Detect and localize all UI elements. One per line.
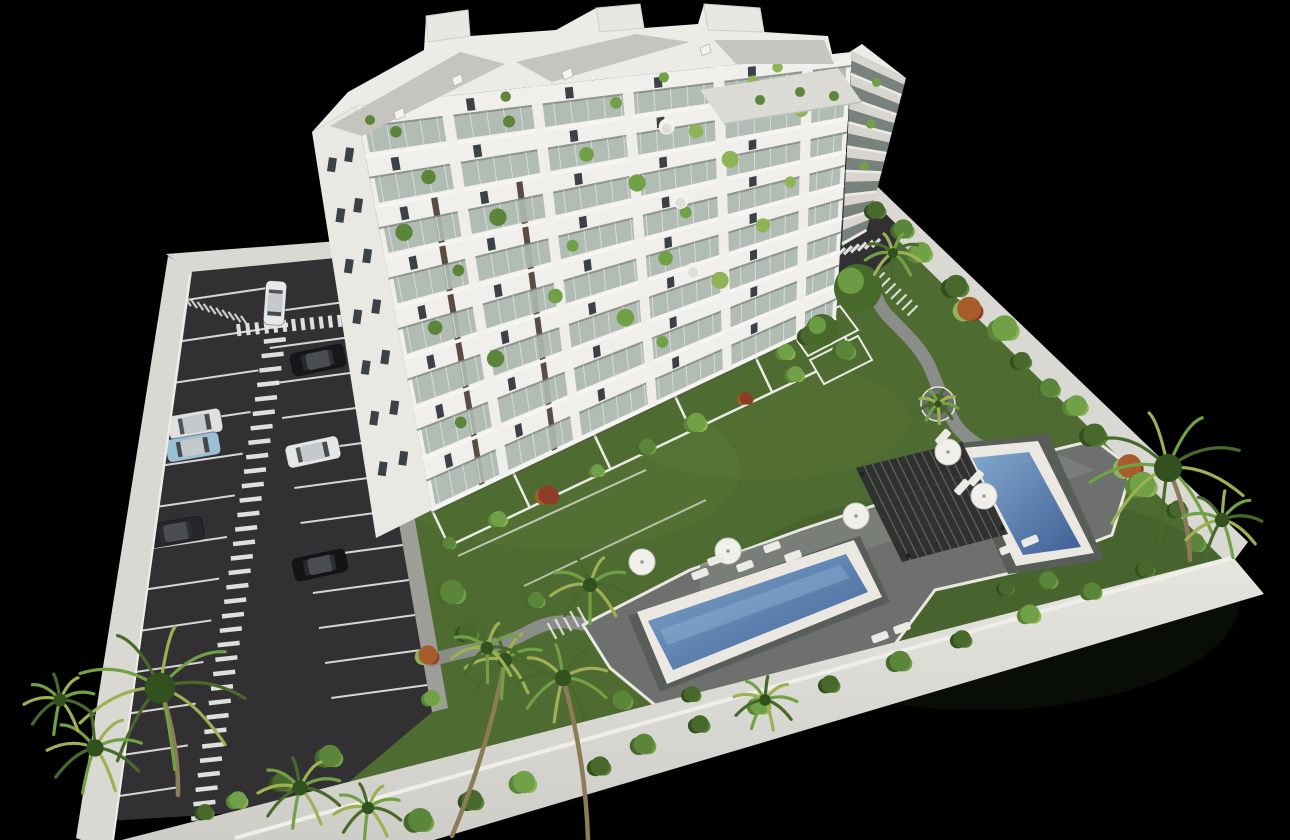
palm-crown [934,400,941,407]
walkway-dash [248,440,270,442]
roof-bulkhead [426,10,470,42]
window [588,302,596,316]
roof-plant [365,115,375,125]
crosswalk-dash [321,317,323,329]
balcony-plant [872,78,881,87]
east-slab [846,171,882,173]
balcony-plant [610,97,622,109]
balcony-plant [390,126,402,138]
bush [590,756,609,775]
walkway-dash [202,744,224,746]
bush [778,344,794,360]
crosswalk-dash [311,317,313,329]
site-render [0,0,1290,840]
pergola-leg [906,554,911,559]
window [749,176,757,187]
balcony-plant [756,218,770,232]
roof-bulkhead [704,4,764,32]
bush [1020,604,1039,623]
glass-mullion [816,173,817,191]
roof-plant [795,87,805,97]
bush [513,771,535,793]
palm-crown [292,780,307,795]
hedge-shrub [1040,378,1059,397]
balcony-awning-shade [662,124,672,134]
umbrella-pole [726,549,730,553]
walkway-dash [244,469,266,471]
walkway-dash [193,802,215,804]
bush [1039,571,1057,589]
crosswalk-dash [256,322,258,334]
pergola-leg [1000,526,1005,531]
balcony-plant [658,251,672,265]
window [584,259,592,272]
walkway-dash [229,571,251,573]
umbrella [629,549,655,575]
walkway-dash [224,599,246,601]
balcony-plant [503,116,515,128]
umbrella [843,503,869,529]
glass-mullion [815,207,816,225]
balcony-awning-shade [688,268,698,278]
garden-shrub [687,413,706,432]
umbrella-pole [854,514,858,518]
palm-crown [555,670,572,687]
window [565,87,574,99]
bush [424,690,440,706]
balcony-plant [866,120,875,129]
hedge-shrub [992,315,1018,341]
bush [684,686,700,702]
balcony-plant [628,174,645,191]
walkway-dash [233,542,255,544]
balcony-plant [500,91,510,101]
window [664,236,672,249]
bush [612,690,631,709]
umbrella-pole [946,450,950,454]
balcony-plant [489,208,507,226]
garden-shrub [788,366,804,382]
window [749,139,757,150]
balcony-plant [453,265,465,277]
hedge-shrub [957,297,981,321]
bush [229,791,247,809]
walkway-dash [213,672,235,674]
palm-crown [145,673,176,704]
bush [197,804,213,820]
bush [953,630,971,648]
walkway-dash [226,585,248,587]
balcony-plant [860,161,869,170]
walkway-dash [235,527,257,529]
umbrella [971,483,997,509]
hedge-shrub [1083,423,1105,445]
garden-shrub [443,537,456,550]
walkway-dash [200,759,222,761]
crosswalk-dash [339,315,341,327]
palm-crown [1154,454,1182,482]
umbrella-pole [982,494,986,498]
walkway-dash [253,412,275,414]
crosswalk-dash [247,323,249,335]
walkway-dash [196,787,218,789]
garden-shrub [491,511,507,527]
walkway-dash [262,354,284,356]
balcony-plant [722,151,739,168]
palm-crown [583,578,597,592]
roof-bulkhead [596,4,644,32]
bush [634,734,655,755]
walkway-dash [255,397,277,399]
balcony-plant [567,240,579,252]
walkway-dash [218,643,240,645]
palm-crown [54,694,67,707]
palm-crown [481,642,494,655]
palm-tree [24,674,94,734]
hedge-shrub [1013,352,1031,370]
crosswalk-dash [302,318,304,330]
crosswalk-dash [330,316,332,328]
balcony-plant [689,124,703,138]
walkway-dash [257,383,279,385]
hedge-shrub [867,201,885,219]
balcony-plant [487,350,504,367]
round-tree [808,316,826,334]
bush [1083,582,1101,600]
glass-mullion [814,241,815,259]
balcony-plant [428,320,442,334]
bush [408,808,432,832]
balcony-plant [617,309,635,327]
garden-shrub [591,464,604,477]
walkway-dash [246,455,268,457]
palm-crown [759,694,771,706]
walkway-dash [259,368,281,370]
walkway-dash [237,513,259,515]
garden-shrub [835,340,854,359]
round-tree [838,268,864,294]
window [662,196,670,208]
bush [691,715,709,733]
garden-shrub [639,439,655,455]
walkway-dash [209,701,231,703]
pergola-leg [860,472,865,477]
walkway-dash [240,498,262,500]
bush [440,580,464,604]
balcony-plant [455,417,467,429]
walkway-dash [207,715,229,717]
glass-mullion [812,276,813,294]
render-canvas [0,0,1290,840]
garden-shrub [538,485,557,504]
window [574,173,583,186]
bush [999,581,1013,595]
walkway-dash [242,484,264,486]
palm-crown [888,248,898,258]
roof-plant [829,91,839,101]
balcony-plant [579,147,594,162]
window [659,157,667,169]
balcony-plant [548,289,563,304]
balcony-plant [785,176,796,187]
palm-crown [362,802,374,814]
garden-shrub [740,392,753,405]
window [748,66,756,77]
walkway-dash [222,614,244,616]
crosswalk-dash [293,319,295,331]
balcony-plant [659,72,669,82]
roof-plant [755,95,765,105]
crosswalk-dash [238,324,240,336]
window [579,216,588,229]
umbrella-pole [640,560,644,564]
walkway-dash [220,628,242,630]
balcony-plant [421,170,435,184]
bush [528,592,544,608]
palm-crown [86,739,103,756]
glass-mullion [817,138,818,156]
balcony-plant [395,224,412,241]
car [263,280,287,325]
balcony-plant [657,336,669,348]
walkway-dash [251,426,273,428]
walkway-dash [215,657,237,659]
bush [319,745,341,767]
bush [418,645,437,664]
walkway-dash [264,339,286,341]
car-roof [267,293,283,314]
window [570,130,579,142]
walkway-dash [231,556,253,558]
walkway-dash [198,773,220,775]
bush [890,651,911,672]
balcony-awning-shade [675,198,685,208]
palm-crown [1215,513,1229,527]
hedge-shrub [945,275,967,297]
bush [821,675,839,693]
bush [1138,561,1154,577]
balcony-plant [711,272,728,289]
hedge-shrub [1066,395,1087,416]
